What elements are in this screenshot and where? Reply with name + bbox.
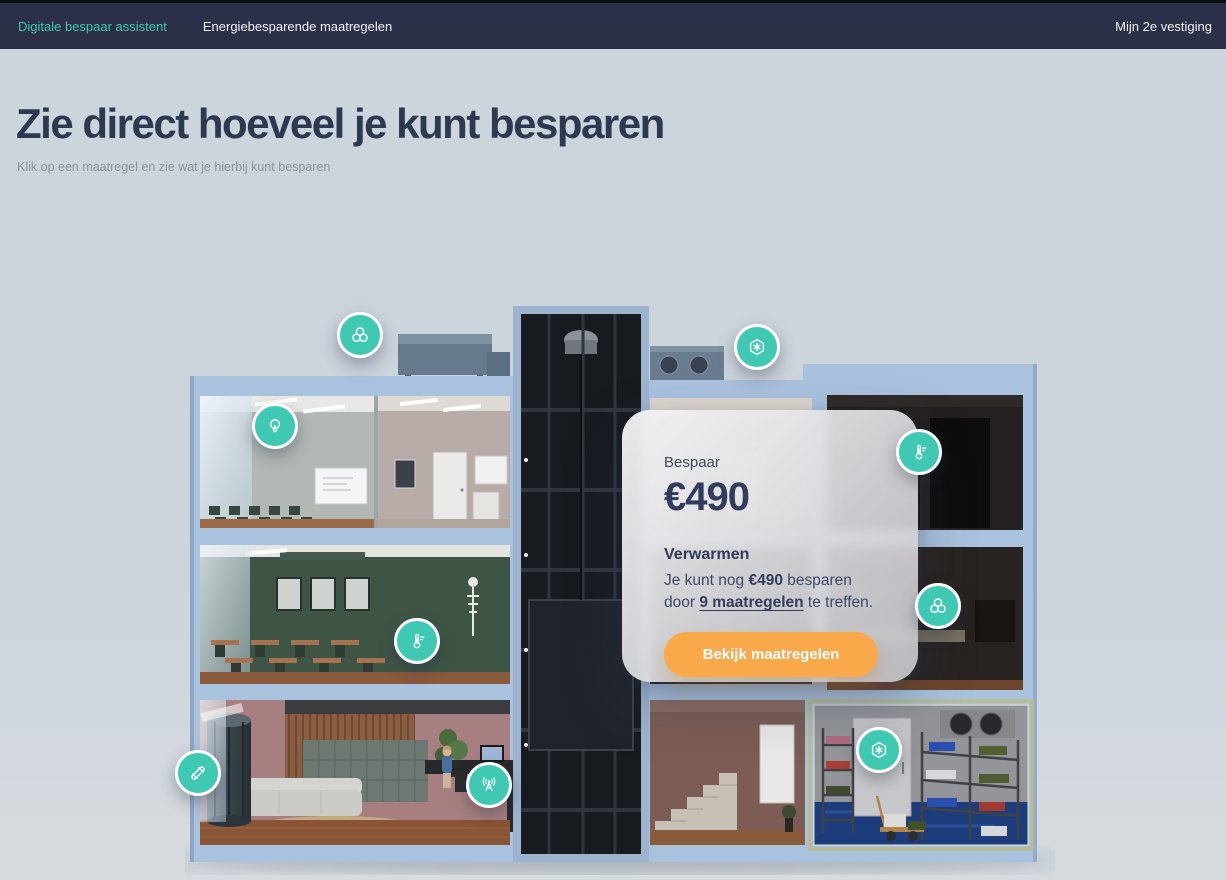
marker-ventilation-kitchen[interactable] — [915, 583, 961, 629]
marker-lighting-classroom[interactable] — [252, 403, 298, 449]
roof-hvac-unit-right[interactable] — [650, 346, 724, 380]
nav-item-mijn-2e-vestiging[interactable]: Mijn 2e vestiging — [1115, 19, 1212, 34]
room-stair-hallway[interactable] — [650, 700, 805, 845]
fan-icon — [926, 594, 950, 618]
nav-item-digitale-bespaar-assistent[interactable]: Digitale bespaar assistent — [18, 19, 167, 34]
room-office-top[interactable] — [378, 396, 510, 528]
savings-card: Bespaar €490 Verwarmen Je kunt nog €490 … — [622, 410, 918, 682]
savings-amount: €490 — [664, 475, 878, 520]
measures-count-link[interactable]: 9 maatregelen — [699, 594, 803, 611]
room-storage-highlighted[interactable] — [810, 701, 1032, 849]
marker-cooling-roof[interactable] — [734, 324, 780, 370]
savings-description: Je kunt nog €490 besparen door 9 maatreg… — [664, 570, 878, 614]
measure-title: Verwarmen — [664, 546, 878, 564]
marker-ventilation-roof[interactable] — [337, 312, 383, 358]
sentence-prefix: Je kunt nog — [664, 572, 748, 589]
page-title: Zie direct hoeveel je kunt besparen — [16, 100, 664, 148]
fan-icon — [348, 323, 372, 347]
marker-cooling-storage[interactable] — [856, 727, 902, 773]
page-subtitle: Klik op een maatregel en zie wat je hier… — [17, 160, 664, 174]
hex-snowflake-icon — [745, 335, 769, 359]
antenna-icon — [477, 773, 501, 797]
marker-piping-lobby[interactable] — [175, 750, 221, 796]
digital-savings-assistant-page: Digitale bespaar assistent Energiebespar… — [0, 0, 1226, 880]
savings-intro-label: Bespaar — [664, 454, 878, 471]
thermometer-icon — [405, 629, 429, 653]
roof-hvac-unit-left[interactable] — [398, 334, 510, 379]
bulb-icon — [263, 414, 287, 438]
marker-heating-storage-room[interactable] — [896, 429, 942, 475]
thermometer-icon — [907, 440, 931, 464]
pipe-icon — [186, 761, 210, 785]
view-measures-button[interactable]: Bekijk maatregelen — [664, 632, 878, 677]
top-nav: Digitale bespaar assistent Energiebespar… — [0, 3, 1226, 49]
sentence-amount: €490 — [748, 572, 782, 589]
nav-left-group: Digitale bespaar assistent Energiebespar… — [18, 19, 392, 34]
room-classroom-middle[interactable] — [200, 545, 510, 684]
marker-heating-classroom[interactable] — [394, 618, 440, 664]
nav-item-energiebesparende-maatregelen[interactable]: Energiebesparende maatregelen — [203, 19, 392, 34]
hero-section: Zie direct hoeveel je kunt besparen Klik… — [16, 100, 664, 174]
marker-smart-meter-reception[interactable] — [466, 762, 512, 808]
hex-snowflake-icon — [867, 738, 891, 762]
sentence-suffix: te treffen. — [804, 594, 874, 611]
